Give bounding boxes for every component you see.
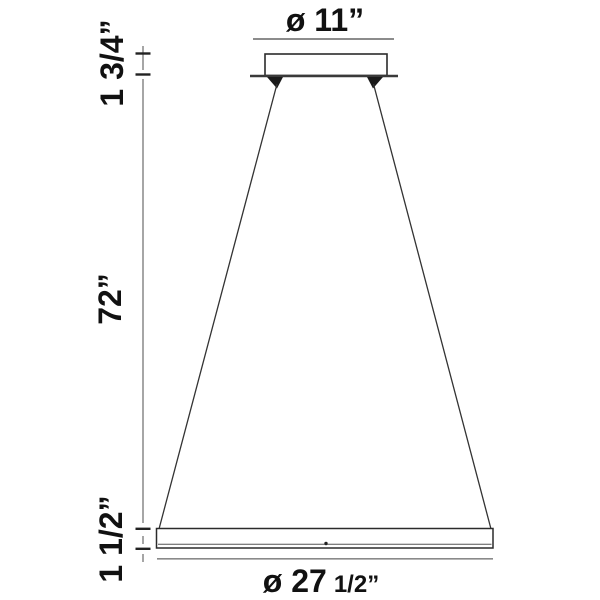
ring-height-label: 1 1/2”	[93, 469, 129, 600]
suspension-length-label: 72”	[92, 229, 128, 369]
ring-outline	[157, 529, 494, 549]
canopy-diameter-label: ø 11”	[225, 2, 425, 39]
ring-center-mark	[324, 542, 327, 545]
canopy-outline	[265, 54, 387, 76]
right-cable-gripper	[367, 77, 383, 89]
canopy-height-label: 1 3/4”	[94, 0, 130, 133]
left-suspension-cable	[159, 84, 277, 529]
ring-diameter-main-text: ø 27	[263, 563, 327, 599]
pendant-dimension-diagram: ø 11” 1 3/4” 72” 1 1/2” ø 271/2”	[0, 0, 600, 600]
left-cable-gripper	[267, 77, 283, 89]
right-suspension-cable	[374, 84, 492, 529]
ring-diameter-label: ø 271/2”	[171, 563, 471, 600]
ring-diameter-fraction-text: 1/2”	[334, 571, 379, 598]
line-art	[0, 0, 600, 600]
